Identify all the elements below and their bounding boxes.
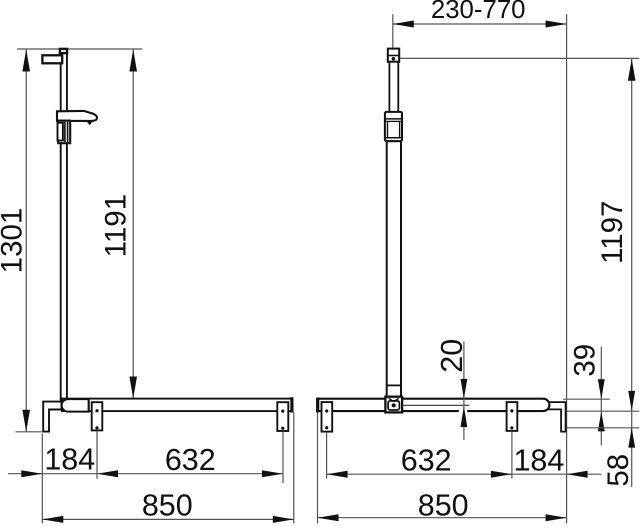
svg-text:184: 184: [513, 443, 564, 477]
svg-text:1301: 1301: [0, 208, 29, 274]
svg-text:1191: 1191: [100, 194, 133, 257]
svg-text:632: 632: [401, 443, 452, 477]
svg-text:20: 20: [435, 339, 469, 373]
svg-text:58: 58: [602, 454, 635, 487]
svg-text:632: 632: [165, 443, 216, 477]
svg-text:39: 39: [568, 344, 601, 377]
svg-text:1197: 1197: [596, 201, 629, 264]
svg-text:184: 184: [44, 443, 95, 477]
svg-text:230-770: 230-770: [431, 0, 526, 24]
svg-text:850: 850: [418, 489, 469, 523]
svg-text:850: 850: [142, 489, 193, 523]
